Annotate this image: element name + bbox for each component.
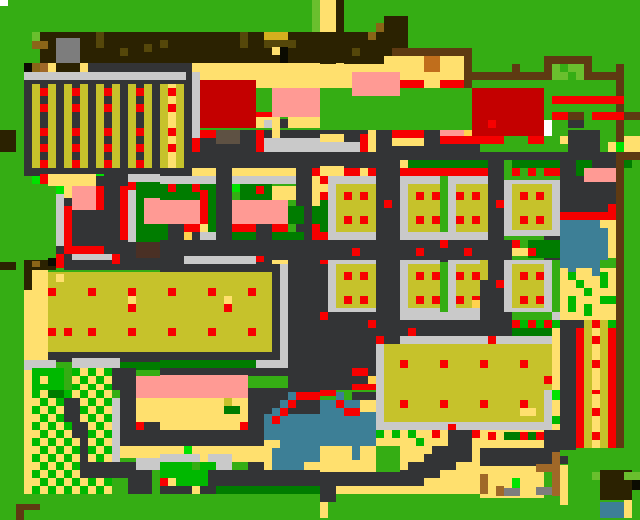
map-tile (72, 160, 80, 168)
map-tile (336, 0, 344, 33)
map-tile (72, 144, 80, 152)
map-tile (120, 446, 160, 458)
map-tile (104, 128, 112, 136)
map-tile (264, 138, 320, 152)
map-tile (552, 400, 560, 430)
map-tile (336, 264, 376, 308)
map-tile (336, 392, 344, 400)
map-tile (400, 400, 408, 408)
map-tile (72, 478, 80, 486)
map-tile (64, 422, 72, 430)
map-tile (168, 88, 176, 96)
map-tile (240, 32, 248, 48)
map-tile (192, 130, 200, 138)
map-tile (528, 248, 536, 256)
map-tile (192, 63, 200, 72)
map-tile (224, 304, 232, 312)
map-tile (576, 448, 624, 470)
map-tile (40, 376, 48, 384)
map-tile (288, 117, 320, 128)
map-tile (192, 232, 200, 240)
map-tile (184, 260, 256, 264)
map-tile (360, 192, 368, 200)
map-tile (624, 112, 640, 120)
map-tile (400, 360, 408, 368)
map-tile (352, 72, 400, 96)
map-tile (456, 216, 464, 224)
map-tile (584, 168, 616, 182)
map-tile (560, 320, 584, 328)
map-tile (64, 438, 72, 446)
map-tile (624, 160, 632, 168)
map-tile (400, 80, 424, 88)
map-tile (168, 478, 176, 486)
map-tile (104, 430, 112, 438)
map-tile (160, 454, 200, 462)
map-tile (272, 224, 288, 232)
map-tile (0, 0, 8, 6)
map-tile (552, 96, 624, 104)
map-tile (216, 486, 320, 494)
map-tile (528, 320, 536, 328)
map-tile (568, 120, 584, 128)
map-tile (56, 260, 64, 268)
map-tile (552, 328, 560, 390)
map-tile (368, 130, 376, 152)
map-tile (248, 288, 256, 296)
map-tile (416, 438, 424, 446)
map-tile (368, 376, 376, 384)
map-tile (504, 488, 520, 496)
map-tile (392, 430, 400, 438)
map-tile (368, 168, 376, 176)
map-tile (24, 370, 32, 390)
map-tile (224, 296, 232, 304)
map-tile (232, 232, 256, 240)
map-tile (184, 232, 192, 240)
map-tile (88, 430, 96, 438)
map-tile (256, 130, 264, 152)
map-tile (520, 320, 528, 328)
map-tile (320, 142, 360, 152)
map-tile (544, 64, 552, 80)
map-tile (64, 486, 72, 494)
map-tile (104, 414, 112, 422)
map-tile (48, 63, 56, 72)
map-tile (360, 216, 368, 224)
map-tile (352, 368, 368, 376)
map-tile (240, 422, 248, 430)
map-tile (128, 182, 136, 190)
map-tile (320, 166, 344, 176)
map-tile (400, 312, 480, 320)
map-tile (72, 422, 88, 438)
map-tile (472, 192, 480, 200)
map-tile (512, 248, 528, 256)
map-tile (96, 454, 104, 462)
map-tile (528, 168, 536, 176)
map-tile (112, 260, 120, 264)
map-tile (168, 128, 176, 136)
map-tile (80, 368, 88, 376)
map-tile (48, 84, 56, 168)
map-tile (272, 264, 280, 368)
map-tile (56, 186, 64, 194)
map-tile (568, 272, 576, 280)
map-tile (96, 84, 104, 168)
map-tile (536, 320, 544, 328)
map-tile (536, 272, 544, 280)
map-tile (160, 224, 168, 240)
map-tile (488, 120, 496, 128)
map-tile (376, 390, 384, 400)
map-tile (104, 478, 112, 486)
pixel-map-screen (0, 0, 640, 520)
map-tile (192, 138, 200, 152)
map-tile (56, 446, 64, 454)
map-tile (592, 112, 624, 120)
map-tile (560, 64, 568, 72)
map-tile (88, 446, 96, 454)
map-tile (136, 128, 144, 136)
map-tile (96, 390, 104, 398)
map-tile (584, 390, 592, 448)
map-tile (184, 224, 200, 232)
map-tile (96, 186, 104, 210)
map-tile (472, 430, 480, 438)
map-tile (496, 486, 504, 496)
map-tile (360, 296, 368, 304)
map-tile (104, 376, 112, 384)
map-tile (104, 446, 112, 454)
map-tile (480, 260, 488, 280)
map-tile (168, 84, 176, 168)
map-tile (128, 470, 152, 494)
map-tile (376, 23, 384, 32)
map-tile (416, 296, 424, 304)
map-tile (104, 398, 112, 406)
map-tile (432, 272, 440, 280)
map-tile (40, 104, 48, 112)
map-tile (200, 486, 216, 494)
map-tile (552, 312, 560, 320)
map-tile (472, 216, 480, 224)
map-tile (520, 216, 528, 224)
map-tile (56, 398, 64, 406)
map-tile (96, 32, 104, 48)
map-tile (312, 176, 320, 206)
map-tile (272, 186, 296, 200)
map-tile (248, 328, 256, 336)
map-tile (432, 216, 440, 224)
pixel-map-canvas[interactable] (0, 0, 640, 520)
map-tile (192, 184, 200, 192)
map-tile (288, 392, 296, 400)
map-tile (80, 63, 88, 72)
map-tile (584, 288, 592, 296)
map-tile (64, 454, 72, 462)
map-tile (320, 200, 328, 232)
map-tile (288, 206, 304, 224)
map-tile (176, 84, 184, 168)
map-tile (584, 304, 592, 316)
map-tile (488, 160, 504, 176)
map-tile (408, 160, 480, 168)
map-tile (48, 288, 56, 296)
map-tile (40, 32, 384, 64)
map-tile (0, 130, 16, 152)
map-tile (144, 198, 160, 224)
map-tile (312, 0, 320, 32)
map-tile (536, 192, 544, 200)
map-tile (544, 376, 552, 384)
map-tile (48, 328, 56, 336)
map-tile (280, 119, 288, 128)
map-tile (64, 328, 72, 336)
map-tile (384, 422, 544, 430)
map-tile (160, 176, 216, 184)
map-tile (160, 430, 264, 446)
map-tile (128, 182, 136, 242)
map-tile (64, 246, 104, 254)
map-tile (192, 470, 208, 486)
map-tile (160, 84, 168, 168)
map-tile (192, 72, 200, 130)
map-tile (104, 160, 112, 168)
map-tile (552, 452, 560, 496)
map-tile (272, 408, 280, 416)
map-tile (464, 248, 472, 256)
map-tile (360, 400, 376, 412)
map-tile (344, 216, 352, 224)
map-tile (440, 240, 448, 248)
map-tile (320, 446, 376, 472)
map-tile (40, 144, 48, 152)
map-tile (360, 272, 368, 280)
map-tile (592, 268, 600, 276)
map-tile (160, 200, 200, 224)
map-tile (40, 478, 48, 486)
map-tile (168, 104, 176, 112)
map-tile (336, 486, 480, 494)
map-tile (440, 360, 448, 368)
map-tile (560, 465, 568, 505)
map-tile (160, 40, 168, 48)
map-tile (584, 320, 592, 390)
map-tile (400, 168, 480, 176)
map-tile (400, 232, 480, 240)
map-tile (32, 84, 40, 168)
map-tile (608, 296, 616, 304)
map-tile (512, 184, 552, 230)
map-tile (88, 478, 96, 486)
map-tile (88, 376, 96, 384)
map-tile (408, 430, 416, 438)
map-tile (376, 400, 384, 430)
map-tile (256, 224, 272, 240)
map-tile (96, 368, 104, 376)
map-tile (472, 88, 544, 136)
map-tile (32, 390, 40, 398)
map-tile (32, 454, 40, 462)
map-tile (160, 478, 168, 486)
map-tile (264, 120, 272, 128)
map-tile (136, 398, 160, 422)
map-tile (224, 398, 232, 406)
map-tile (208, 288, 216, 296)
map-tile (128, 288, 136, 296)
map-tile (48, 272, 272, 352)
map-tile (144, 44, 152, 52)
map-tile (96, 486, 104, 494)
map-tile (528, 136, 544, 144)
map-tile (232, 176, 296, 184)
map-tile (128, 328, 136, 336)
map-tile (264, 32, 288, 40)
map-tile (352, 392, 376, 400)
map-tile (520, 360, 528, 368)
map-tile (296, 392, 320, 400)
map-tile (416, 272, 424, 280)
map-tile (552, 390, 560, 400)
map-tile (496, 200, 504, 208)
map-tile (600, 220, 616, 228)
map-tile (256, 186, 264, 194)
map-tile (520, 296, 528, 304)
map-tile (544, 390, 552, 430)
map-tile (64, 198, 72, 206)
map-tile (264, 446, 272, 470)
map-tile (168, 144, 176, 152)
map-tile (72, 88, 80, 96)
map-tile (512, 168, 520, 176)
map-tile (336, 184, 376, 232)
map-tile (24, 270, 32, 290)
map-tile (136, 242, 160, 258)
map-tile (200, 190, 208, 224)
map-tile (96, 438, 104, 446)
map-tile (320, 184, 328, 192)
map-tile (40, 414, 48, 422)
map-tile (320, 192, 328, 200)
map-tile (56, 194, 64, 246)
map-tile (536, 432, 544, 440)
map-tile (488, 432, 496, 440)
map-tile (48, 422, 56, 430)
map-tile (600, 296, 608, 304)
map-tile (352, 384, 376, 390)
map-tile (136, 376, 160, 390)
map-tile (480, 160, 488, 168)
map-tile (320, 232, 328, 240)
map-tile (32, 368, 64, 390)
map-tile (392, 130, 424, 138)
map-tile (80, 390, 88, 398)
map-tile (88, 398, 96, 406)
map-tile (552, 320, 560, 328)
map-tile (40, 88, 48, 96)
map-tile (512, 160, 560, 168)
map-tile (64, 84, 72, 168)
map-tile (592, 360, 600, 368)
map-tile (136, 104, 144, 112)
map-tile (568, 130, 600, 152)
map-tile (616, 64, 624, 448)
map-tile (520, 408, 536, 416)
map-tile (40, 160, 48, 168)
map-tile (400, 160, 408, 168)
map-tile (544, 168, 560, 176)
map-tile (200, 232, 216, 240)
map-tile (544, 120, 552, 136)
map-tile (624, 136, 640, 152)
map-tile (568, 296, 576, 312)
map-tile (480, 152, 616, 160)
map-tile (272, 130, 280, 138)
map-tile (48, 406, 56, 414)
map-tile (304, 462, 320, 470)
map-tile (480, 136, 504, 144)
map-tile (168, 184, 176, 192)
map-tile (256, 88, 272, 112)
map-tile (536, 487, 552, 495)
map-tile (480, 474, 488, 494)
map-tile (56, 478, 64, 486)
map-tile (32, 176, 40, 184)
map-tile (616, 142, 624, 152)
map-tile (352, 248, 360, 256)
map-tile (280, 47, 288, 63)
map-tile (592, 320, 600, 328)
map-tile (104, 104, 112, 112)
map-tile (576, 328, 584, 390)
map-tile (320, 264, 328, 312)
map-tile (280, 408, 288, 416)
map-tile (56, 63, 80, 72)
map-tile (224, 406, 240, 414)
map-tile (512, 64, 520, 72)
map-tile (488, 176, 504, 240)
map-tile (40, 446, 48, 454)
map-tile (456, 192, 464, 200)
map-tile (184, 446, 192, 454)
map-tile (200, 224, 208, 232)
map-tile (56, 38, 80, 63)
map-tile (592, 472, 600, 480)
map-tile (544, 320, 552, 328)
map-tile (72, 462, 80, 470)
map-tile (96, 176, 104, 186)
map-tile (72, 210, 112, 242)
map-tile (216, 130, 240, 144)
map-tile (128, 304, 136, 312)
map-tile (128, 174, 160, 182)
map-tile (592, 432, 600, 440)
map-tile (592, 336, 600, 344)
map-tile (344, 168, 360, 176)
map-tile (56, 274, 64, 282)
map-tile (160, 486, 192, 494)
map-tile (600, 390, 608, 448)
map-tile (344, 408, 360, 416)
map-tile (352, 48, 360, 56)
map-tile (112, 84, 120, 168)
map-tile (528, 432, 536, 440)
map-tile (624, 152, 640, 160)
map-tile (440, 136, 480, 144)
map-tile (536, 216, 544, 224)
map-tile (80, 406, 88, 414)
